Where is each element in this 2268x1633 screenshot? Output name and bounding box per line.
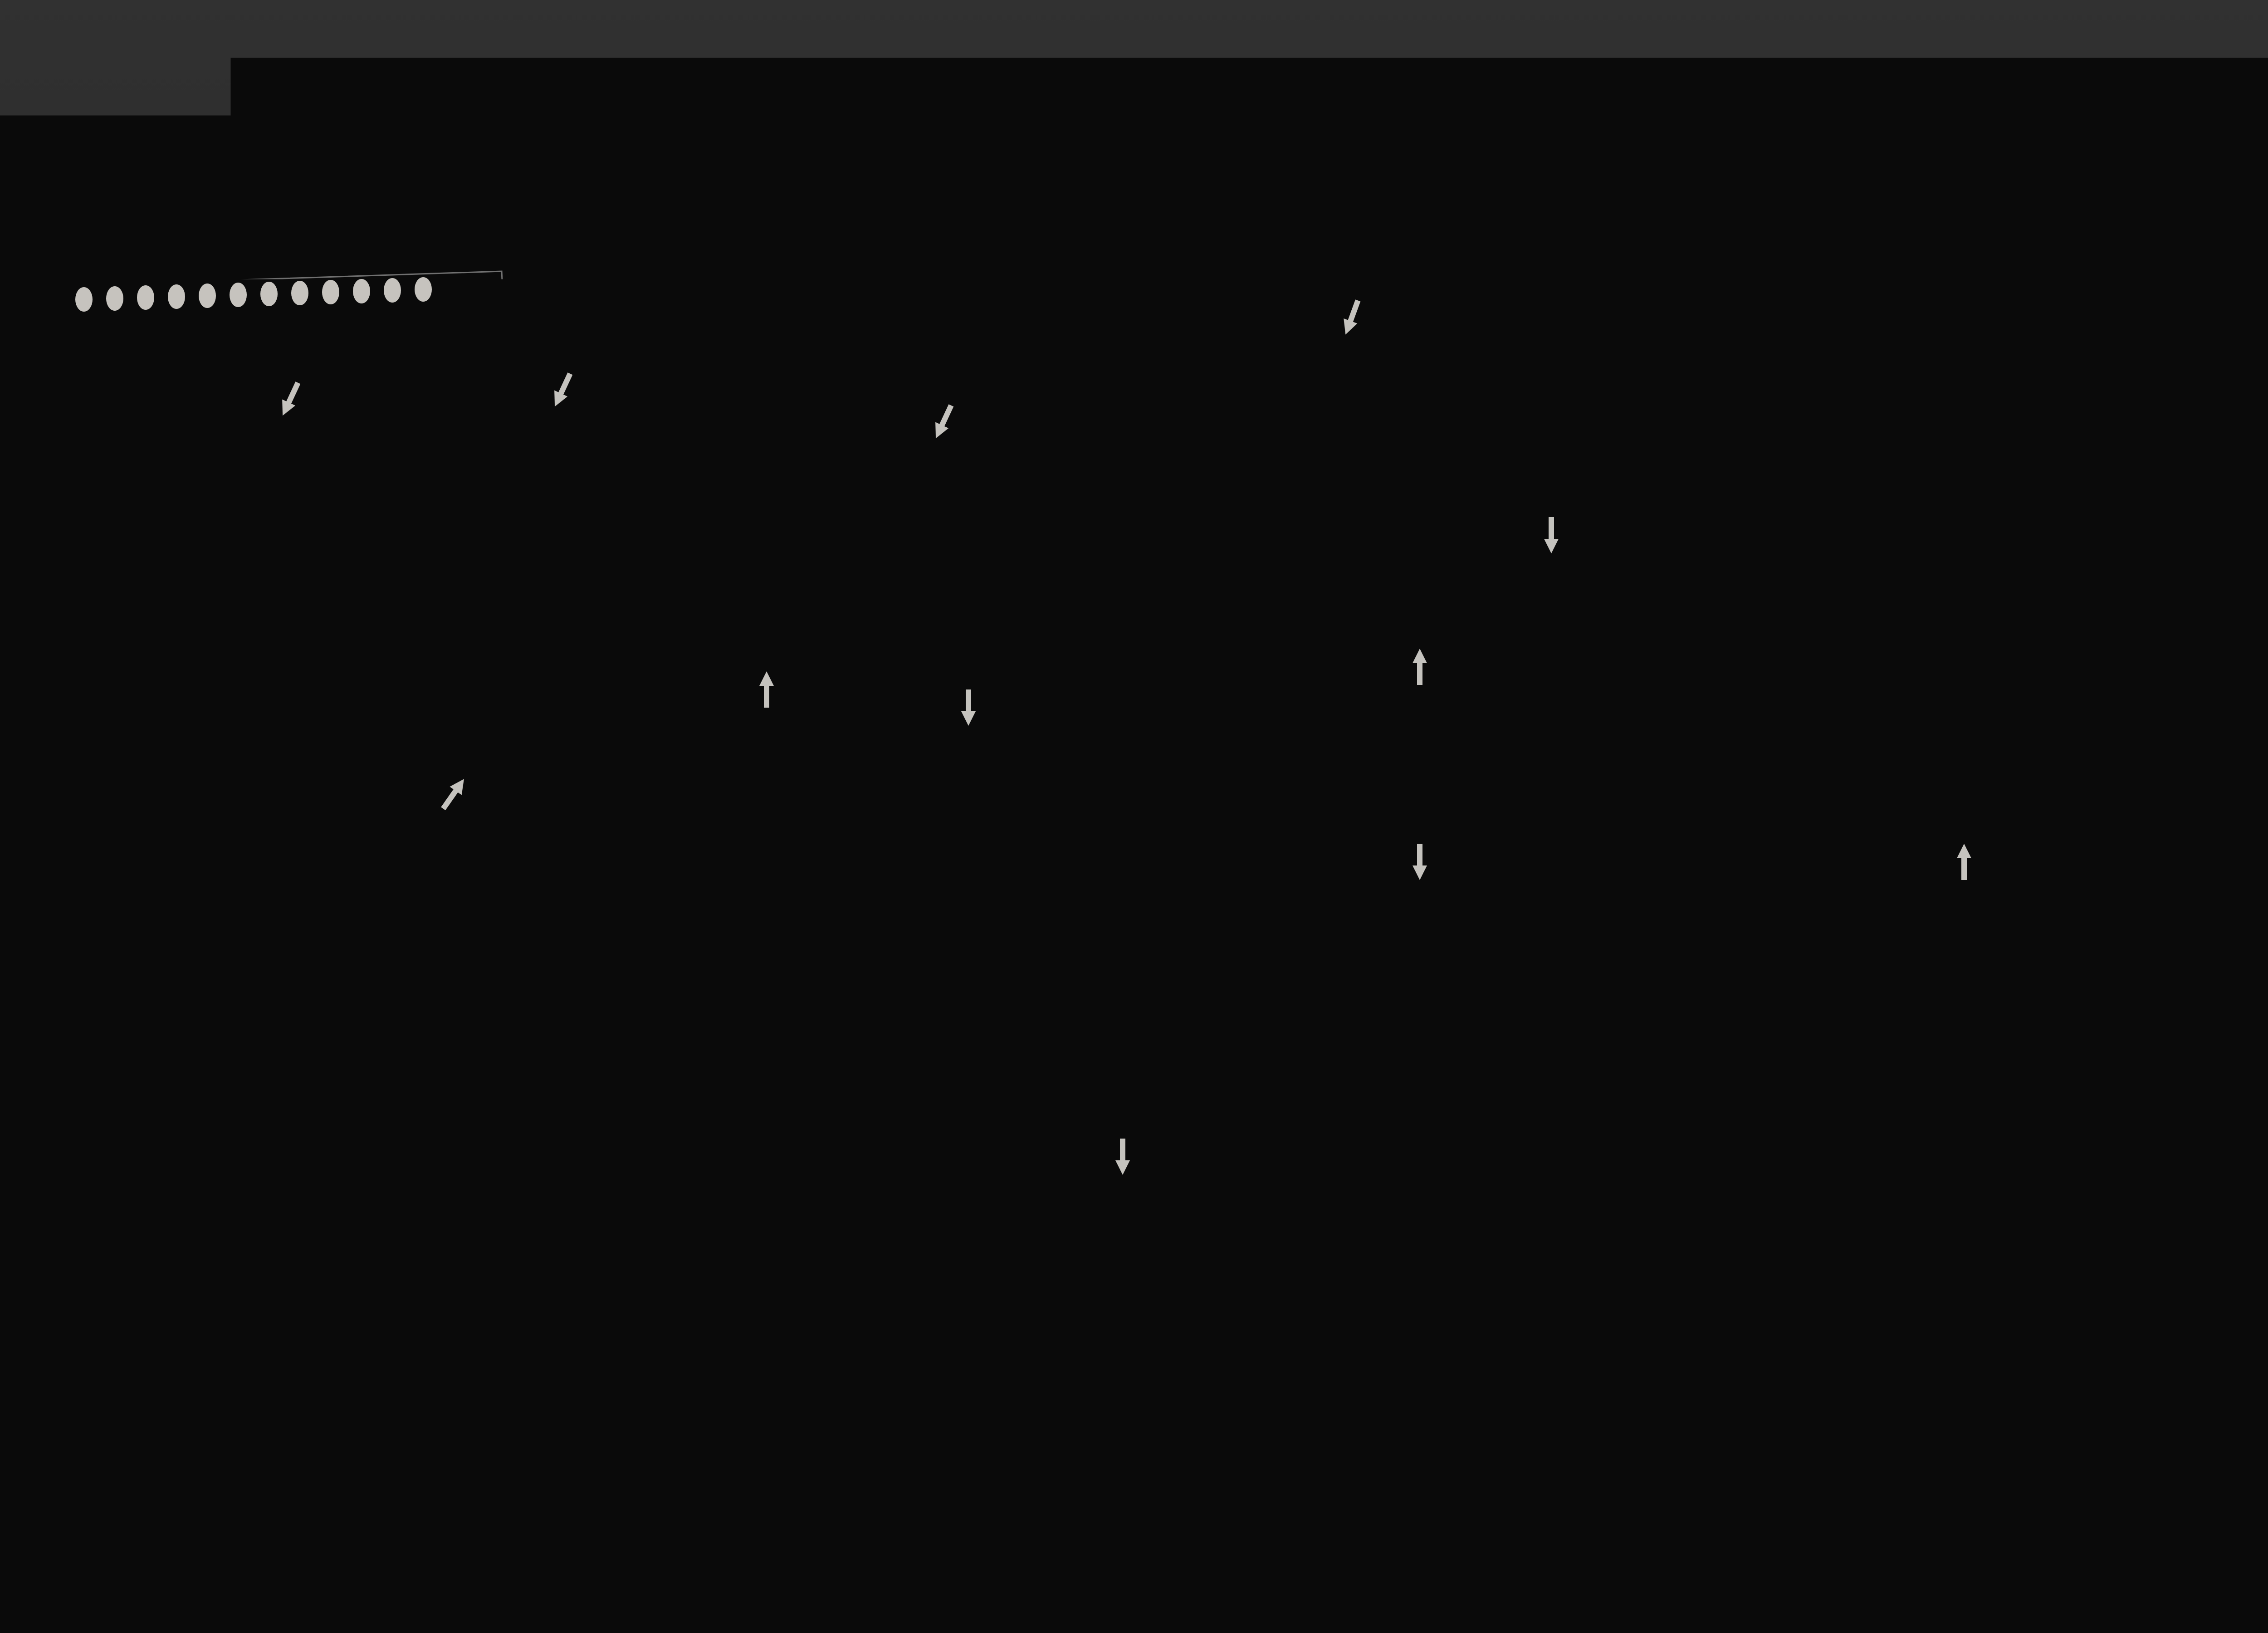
svg-text:03-21: 03-21 xyxy=(1984,973,2033,994)
svg-text:A2104: A2104 xyxy=(1533,631,1567,645)
svg-text:B2137: B2137 xyxy=(120,343,154,357)
svg-text:03-17: 03-17 xyxy=(1892,1081,1941,1102)
svg-text:B2143: B2143 xyxy=(327,332,361,346)
svg-text:B2033: B2033 xyxy=(989,1465,1023,1478)
svg-text:A2054: A2054 xyxy=(1404,908,1438,921)
svg-text:03-11: 03-11 xyxy=(1864,362,1912,383)
svg-text:02-22: 02-22 xyxy=(1197,653,1247,675)
svg-text:B2151: B2151 xyxy=(489,452,523,465)
svg-text:B2135: B2135 xyxy=(126,512,160,525)
svg-text:B2003: B2003 xyxy=(946,279,980,292)
svg-text:B2096: B2096 xyxy=(613,453,647,466)
svg-text:B2031: B2031 xyxy=(1073,1410,1107,1423)
svg-text:B2167: B2167 xyxy=(329,529,363,543)
svg-text:A2042: A2042 xyxy=(1201,1350,1235,1364)
svg-text:B2100: B2100 xyxy=(613,585,647,599)
svg-text:B2092: B2092 xyxy=(680,552,714,566)
svg-text:B2064: B2064 xyxy=(816,484,850,497)
svg-text:A2074: A2074 xyxy=(1340,570,1374,584)
svg-text:A2032: A2032 xyxy=(1154,711,1188,725)
svg-text:03-10: 03-10 xyxy=(1860,312,1910,333)
svg-text:A2136: A2136 xyxy=(1660,521,1694,534)
svg-text:03-05: 03-05 xyxy=(1645,861,1695,883)
svg-text:B2021: B2021 xyxy=(1102,956,1136,970)
svg-text:B2155: B2155 xyxy=(489,595,523,609)
svg-text:A2125: A2125 xyxy=(1786,351,1820,365)
svg-text:B2077: B2077 xyxy=(829,1059,885,1081)
svg-text:B2105: B2105 xyxy=(613,751,647,764)
svg-text:A2035: A2035 xyxy=(1173,956,1207,970)
svg-text:B2008: B2008 xyxy=(792,292,826,306)
svg-text:B2166: B2166 xyxy=(363,528,397,542)
svg-text:02-19: 02-19 xyxy=(1159,1289,1209,1310)
svg-text:B2108: B2108 xyxy=(613,850,647,864)
svg-text:B2080: B2080 xyxy=(679,958,735,980)
svg-text:A2100: A2100 xyxy=(1483,686,1517,700)
svg-text:A2077: A2077 xyxy=(1340,702,1374,716)
svg-text:B2062: B2062 xyxy=(816,424,850,437)
svg-text:02-21: 02-21 xyxy=(1226,882,1276,904)
svg-text:B2030: B2030 xyxy=(1073,1374,1129,1396)
svg-text:B2050: B2050 xyxy=(932,788,988,810)
svg-text:B2119: B2119 xyxy=(494,1017,527,1030)
svg-text:03-13: 03-13 xyxy=(1839,693,1889,714)
svg-text:03-07: 03-07 xyxy=(1600,330,1650,352)
svg-text:B2165: B2165 xyxy=(411,592,445,606)
svg-text:A2114: A2114 xyxy=(1538,910,1571,924)
svg-text:B2168: B2168 xyxy=(297,529,331,543)
svg-text:B2102: B2102 xyxy=(613,651,647,665)
svg-text:03-18: 03-18 xyxy=(1943,770,1993,792)
svg-text:B2118: B2118 xyxy=(511,1041,544,1055)
svg-text:02-09: 02-09 xyxy=(958,364,1008,386)
svg-text:A2110: A2110 xyxy=(1555,797,1588,810)
svg-text:B2116: B2116 xyxy=(556,1099,589,1113)
svg-text:02-18: 02-18 xyxy=(1026,1249,1075,1271)
svg-text:B2134: B2134 xyxy=(190,604,224,617)
svg-text:B2133: B2133 xyxy=(209,631,243,645)
svg-text:02-07: 02-07 xyxy=(741,929,791,950)
svg-text:B2040: B2040 xyxy=(884,912,918,926)
svg-text:B2070: B2070 xyxy=(852,820,908,842)
svg-text:B2121: B2121 xyxy=(446,956,480,970)
svg-text:B2034: B2034 xyxy=(957,1465,991,1478)
svg-text:A2086: A2086 xyxy=(1388,933,1444,954)
svg-text:02-16: 02-16 xyxy=(1012,1152,1062,1173)
svg-text:01-25: 01-25 xyxy=(186,551,236,573)
svg-text:B2091: B2091 xyxy=(680,585,714,599)
svg-text:B2071: B2071 xyxy=(814,855,848,868)
svg-text:02-14: 02-14 xyxy=(982,976,1031,998)
svg-text:02-25: 02-25 xyxy=(1189,372,1239,394)
svg-text:A2070: A2070 xyxy=(1340,394,1374,408)
svg-text:A2099: A2099 xyxy=(1483,717,1517,730)
svg-text:B2111: B2111 xyxy=(615,959,668,981)
svg-text:03-12: 03-12 xyxy=(1836,510,1886,532)
svg-text:B2078: B2078 xyxy=(789,1236,823,1249)
svg-text:A2081: A2081 xyxy=(1340,878,1374,892)
svg-text:B2006: B2006 xyxy=(853,287,887,300)
svg-text:03-04: 03-04 xyxy=(1653,1012,1703,1033)
svg-text:02-17: 02-17 xyxy=(964,1232,1014,1253)
svg-text:B2174: B2174 xyxy=(439,462,473,476)
svg-text:B2067: B2067 xyxy=(814,720,848,734)
svg-text:A2057: A2057 xyxy=(1404,812,1438,826)
svg-text:A2034: A2034 xyxy=(1173,926,1207,940)
svg-text:A2119: A2119 xyxy=(1474,483,1507,496)
svg-text:02-03: 02-03 xyxy=(538,397,588,419)
svg-text:01-28: 01-28 xyxy=(411,885,460,907)
svg-text:B2023: B2023 xyxy=(1102,1024,1136,1038)
svg-text:A2036: A2036 xyxy=(1173,991,1207,1004)
svg-text:B2046: B2046 xyxy=(1089,917,1123,931)
svg-text:B2120: B2120 xyxy=(479,992,513,1005)
svg-text:A2121: A2121 xyxy=(1474,412,1508,425)
svg-text:B2007: B2007 xyxy=(822,289,856,303)
svg-text:A2124: A2124 xyxy=(1745,352,1779,366)
svg-text:A2115: A2115 xyxy=(1569,910,1602,924)
svg-text:B2158: B2158 xyxy=(489,703,523,716)
svg-text:B2129: B2129 xyxy=(318,745,352,759)
svg-text:A2060: A2060 xyxy=(1291,690,1347,712)
svg-text:B2004: B2004 xyxy=(915,281,949,295)
svg-text:B2107: B2107 xyxy=(613,817,647,831)
svg-text:B2148: B2148 xyxy=(426,327,460,340)
svg-text:B2124: B2124 xyxy=(411,872,445,886)
svg-text:B2159: B2159 xyxy=(489,738,523,752)
svg-text:A2111: A2111 xyxy=(1550,827,1583,841)
svg-text:A2076: A2076 xyxy=(1340,658,1374,672)
svg-text:B2079: B2079 xyxy=(758,1265,792,1278)
svg-text:B2113: B2113 xyxy=(666,1129,699,1143)
svg-text:A2123: A2123 xyxy=(1520,359,1554,372)
svg-text:02-10: 02-10 xyxy=(935,397,985,419)
svg-text:B2170: B2170 xyxy=(297,464,331,478)
svg-text:B2128: B2128 xyxy=(335,768,369,781)
svg-text:B2104: B2104 xyxy=(613,718,647,731)
svg-text:01-23: 01-23 xyxy=(344,430,394,451)
svg-text:03-16: 03-16 xyxy=(1838,1032,1888,1054)
svg-text:B2044: B2044 xyxy=(934,959,968,973)
svg-text:B2043: B2043 xyxy=(934,992,968,1005)
svg-text:A2102: A2102 xyxy=(1483,615,1517,629)
svg-text:B2132: B2132 xyxy=(231,661,265,675)
svg-text:03-08: 03-08 xyxy=(1852,253,1902,275)
svg-text:A2089: A2089 xyxy=(1377,1016,1433,1038)
svg-text:A2113: A2113 xyxy=(1507,910,1540,924)
svg-text:B2094: B2094 xyxy=(680,486,714,499)
svg-text:03-02: 03-02 xyxy=(1413,1300,1463,1322)
svg-text:A2101: A2101 xyxy=(1483,656,1517,670)
svg-text:B2138: B2138 xyxy=(154,341,188,355)
svg-text:A2078: A2078 xyxy=(1340,746,1374,760)
svg-text:A2052: A2052 xyxy=(1270,960,1304,973)
svg-text:A2062: A2062 xyxy=(1290,635,1346,657)
svg-text:A2031: A2031 xyxy=(1154,574,1188,588)
svg-text:A2050: A2050 xyxy=(1270,1028,1304,1041)
svg-text:B2069: B2069 xyxy=(814,794,848,808)
svg-text:02-27: 02-27 xyxy=(1397,704,1447,726)
svg-text:B2032: B2032 xyxy=(1022,1465,1056,1478)
svg-text:A2108: A2108 xyxy=(1555,718,1589,732)
svg-text:02-15: 02-15 xyxy=(983,1101,1033,1123)
svg-text:A2030: A2030 xyxy=(1160,446,1194,460)
svg-text:B2097: B2097 xyxy=(613,486,647,499)
svg-text:A2029: A2029 xyxy=(1057,271,1091,284)
svg-text:A2098: A2098 xyxy=(1483,747,1517,761)
svg-text:B2049: B2049 xyxy=(932,820,988,842)
svg-text:B2141: B2141 xyxy=(258,336,292,349)
svg-text:B2080: B2080 xyxy=(279,959,335,981)
svg-text:02-24: 02-24 xyxy=(1186,338,1236,360)
svg-text:A2131: A2131 xyxy=(1779,630,1813,643)
svg-text:B2099: B2099 xyxy=(613,552,647,566)
svg-text:B2115: B2115 xyxy=(573,1122,606,1135)
svg-text:A2103: A2103 xyxy=(1483,584,1517,598)
svg-text:A2107: A2107 xyxy=(1555,688,1589,701)
svg-text:B2139: B2139 xyxy=(189,339,223,353)
svg-text:B2136: B2136 xyxy=(126,487,160,501)
svg-text:01-24: 01-24 xyxy=(193,414,243,435)
svg-text:A2097: A2097 xyxy=(1483,777,1517,791)
svg-text:A2130: A2130 xyxy=(1779,574,1813,588)
svg-text:B2130: B2130 xyxy=(266,711,300,724)
svg-text:B2038: B2038 xyxy=(884,978,918,992)
svg-text:A2075: A2075 xyxy=(1340,614,1374,628)
svg-text:B2171: B2171 xyxy=(329,464,363,478)
svg-text:A2106: A2106 xyxy=(1579,657,1613,671)
svg-text:B2022: B2022 xyxy=(1102,991,1136,1004)
svg-text:B2073: B2073 xyxy=(814,928,848,942)
svg-text:B2127: B2127 xyxy=(352,792,386,805)
svg-text:A2105: A2105 xyxy=(1579,615,1613,629)
svg-text:A2079: A2079 xyxy=(1340,790,1374,804)
svg-text:B2117: B2117 xyxy=(533,1074,567,1088)
svg-text:A2051: A2051 xyxy=(1270,994,1304,1007)
svg-text:A2072: A2072 xyxy=(1340,482,1374,496)
svg-text:B2144: B2144 xyxy=(361,330,395,344)
svg-text:B2114: B2114 xyxy=(641,1147,675,1160)
svg-text:A2109: A2109 xyxy=(1555,748,1589,762)
svg-text:B2173: B2173 xyxy=(408,462,442,476)
svg-text:B2048: B2048 xyxy=(1089,849,1123,862)
svg-text:B2103: B2103 xyxy=(613,684,647,698)
svg-text:A2028: A2028 xyxy=(1100,268,1134,282)
svg-text:A2112: A2112 xyxy=(1550,859,1584,873)
svg-text:B2161: B2161 xyxy=(489,810,523,824)
svg-text:03-03: 03-03 xyxy=(1618,1048,1668,1070)
svg-text:B2065: B2065 xyxy=(814,660,848,673)
svg-text:B2156: B2156 xyxy=(489,631,523,645)
svg-text:A2071: A2071 xyxy=(1340,438,1374,452)
svg-text:B2125: B2125 xyxy=(393,850,427,864)
svg-text:B2149: B2149 xyxy=(457,325,491,338)
svg-text:02-08: 02-08 xyxy=(794,1159,844,1181)
svg-text:B2140: B2140 xyxy=(223,337,257,351)
svg-text:B2152: B2152 xyxy=(489,488,523,501)
svg-text:B2153: B2153 xyxy=(489,523,523,537)
svg-text:A2128: A2128 xyxy=(1782,486,1816,500)
svg-text:B2162: B2162 xyxy=(431,676,465,690)
svg-text:B2142: B2142 xyxy=(292,334,326,347)
svg-text:02-23: 02-23 xyxy=(1073,355,1123,376)
svg-text:B2045: B2045 xyxy=(934,926,968,940)
svg-text:B2005: B2005 xyxy=(884,284,918,298)
svg-text:B2095: B2095 xyxy=(680,453,714,466)
svg-text:02-01: 02-01 xyxy=(546,1050,596,1071)
svg-text:A2055: A2055 xyxy=(1404,876,1438,890)
svg-text:B2090: B2090 xyxy=(680,618,714,632)
svg-text:B2029: B2029 xyxy=(1073,1347,1107,1361)
svg-text:B2093: B2093 xyxy=(680,519,714,533)
svg-text:B2160: B2160 xyxy=(489,774,523,788)
svg-text:02-26: 02-26 xyxy=(1379,574,1429,596)
svg-text:B2172: B2172 xyxy=(361,464,395,478)
svg-text:02-12: 02-12 xyxy=(955,876,1005,898)
svg-text:B2109: B2109 xyxy=(613,883,647,897)
svg-text:B2106: B2106 xyxy=(613,784,647,797)
svg-text:02-02: 02-02 xyxy=(534,684,584,705)
svg-text:A2120: A2120 xyxy=(1474,447,1508,461)
svg-text:B2154: B2154 xyxy=(489,559,523,573)
svg-text:02-05: 02-05 xyxy=(747,384,797,406)
svg-text:A2043: A2043 xyxy=(1287,1345,1321,1359)
svg-text:02-11: 02-11 xyxy=(949,627,997,649)
svg-text:B2157: B2157 xyxy=(489,667,523,680)
svg-text:A2067: A2067 xyxy=(1291,452,1347,474)
svg-text:03-06: 03-06 xyxy=(1573,550,1623,572)
svg-text:B2150: B2150 xyxy=(488,323,522,337)
svg-text:A2126: A2126 xyxy=(1782,416,1816,429)
svg-text:A2073: A2073 xyxy=(1340,526,1374,540)
svg-text:A2095: A2095 xyxy=(1520,859,1554,873)
svg-text:B2101: B2101 xyxy=(613,618,647,632)
svg-text:B2047: B2047 xyxy=(1089,883,1123,896)
svg-text:B2066: B2066 xyxy=(814,690,848,704)
svg-text:B2147: B2147 xyxy=(396,328,430,342)
svg-text:03-15: 03-15 xyxy=(1806,864,1856,885)
svg-text:B2001: B2001 xyxy=(1007,273,1041,287)
svg-text:02-04: 02-04 xyxy=(587,417,637,439)
svg-text:A2127: A2127 xyxy=(1782,451,1816,464)
svg-text:B2164: B2164 xyxy=(411,628,445,641)
svg-text:B2063: B2063 xyxy=(816,455,850,469)
svg-text:A2132: A2132 xyxy=(1928,488,1962,502)
svg-text:A2129: A2129 xyxy=(1782,522,1816,535)
svg-text:B2126: B2126 xyxy=(378,828,412,841)
svg-text:A2080: A2080 xyxy=(1340,834,1374,848)
svg-text:B2131: B2131 xyxy=(249,688,283,702)
svg-text:B2169: B2169 xyxy=(250,469,284,483)
svg-text:B2098: B2098 xyxy=(613,519,647,533)
svg-text:B2002: B2002 xyxy=(977,276,1011,289)
svg-text:B2068: B2068 xyxy=(814,751,848,765)
svg-text:03-14: 03-14 xyxy=(1804,793,1854,815)
svg-text:A2122: A2122 xyxy=(1474,376,1508,390)
